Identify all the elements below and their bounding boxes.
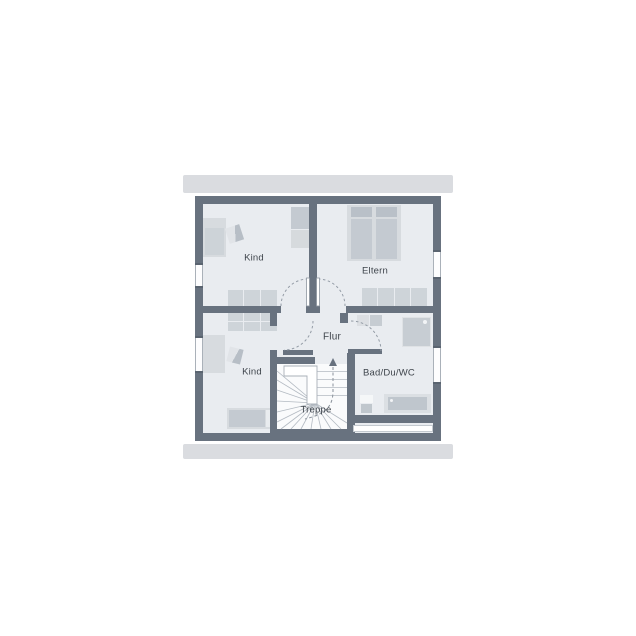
bed-kind-bottom — [227, 408, 273, 429]
wall-kind-bottom-upper — [270, 313, 277, 326]
wardrobe-segment — [244, 290, 260, 306]
room-label-flur: Flur — [323, 332, 341, 343]
roof-edge-bar-top — [183, 175, 453, 193]
wardrobe-segment — [362, 288, 377, 306]
wall-stair-bottom — [270, 429, 355, 435]
wall-bad-stub — [340, 313, 348, 323]
mattress — [376, 219, 397, 259]
wardrobe-segment — [395, 288, 410, 306]
room-label-kind-top: Kind — [244, 253, 264, 264]
wardrobe-row-kind-top — [228, 290, 277, 306]
wall-flur-north-left — [203, 306, 281, 313]
basin-bowl — [357, 315, 369, 326]
wc-toilet — [359, 395, 374, 413]
wall-exterior-right — [433, 196, 441, 441]
wall-kind-bottom-lower — [270, 350, 277, 433]
shower-drain — [423, 320, 427, 324]
double-bed-eltern — [347, 205, 401, 261]
window-kind-bottom — [195, 337, 203, 372]
wardrobe-segment — [378, 288, 394, 306]
wardrobe-segment — [291, 207, 309, 229]
window-cap — [195, 286, 203, 288]
wardrobe-segment — [244, 313, 260, 321]
window-bad — [433, 347, 441, 383]
mattress — [351, 219, 372, 259]
wardrobe-segment — [291, 230, 309, 248]
knee-wall-strip — [353, 425, 433, 432]
roof-edge-bar-bottom — [183, 444, 453, 459]
wardrobe-segment — [228, 313, 243, 321]
window-cap — [433, 250, 441, 252]
wardrobe-segment — [228, 322, 243, 331]
window-cap — [195, 336, 203, 338]
basin-bowl — [370, 315, 382, 326]
wall-stub-foot — [306, 306, 320, 313]
wardrobe-segment — [228, 290, 243, 306]
bed-mattress — [205, 228, 224, 255]
pillow — [351, 207, 372, 217]
window-eltern — [433, 251, 441, 278]
washbasin — [357, 315, 382, 326]
window-cap — [433, 346, 441, 348]
room-label-bad: Bad/Du/WC — [363, 368, 415, 379]
window-cap — [433, 277, 441, 279]
wardrobe-segment — [244, 322, 260, 331]
wall-flur-north-right — [346, 306, 433, 313]
window-cap — [195, 371, 203, 373]
wc-cistern — [360, 395, 373, 403]
door-leaf-bad — [348, 349, 382, 354]
floor-plan-canvas: Kind Eltern Flur Kind Treppe Bad/Du/WC — [0, 0, 636, 636]
wall-exterior-left — [195, 196, 203, 441]
desk-kind-bottom — [203, 335, 225, 373]
room-label-kind-bottom: Kind — [242, 367, 262, 378]
room-label-treppe: Treppe — [301, 405, 332, 416]
shower — [402, 317, 431, 347]
window-cap — [433, 382, 441, 384]
bed-kind-top — [203, 218, 226, 257]
bathtub-drain — [390, 399, 393, 402]
wall-bad-bottom — [347, 415, 435, 423]
bathtub — [384, 394, 431, 413]
pillow — [376, 207, 397, 217]
wall-stair-top — [277, 357, 315, 364]
staircase-floor — [277, 364, 347, 429]
wall-kind-eltern — [309, 204, 317, 306]
wardrobe-kind-top — [291, 207, 309, 248]
wardrobe-segment — [411, 288, 427, 306]
wall-exterior-top — [195, 196, 441, 204]
mattress — [229, 410, 265, 427]
wardrobe-segment — [261, 290, 277, 306]
wc-bowl — [361, 404, 372, 413]
door-leaf-kind-bottom — [283, 350, 313, 355]
room-label-eltern: Eltern — [362, 266, 388, 277]
wardrobe-row-eltern — [362, 288, 427, 306]
bathtub-basin — [388, 397, 427, 410]
window-cap — [195, 263, 203, 265]
window-kind-top — [195, 264, 203, 287]
